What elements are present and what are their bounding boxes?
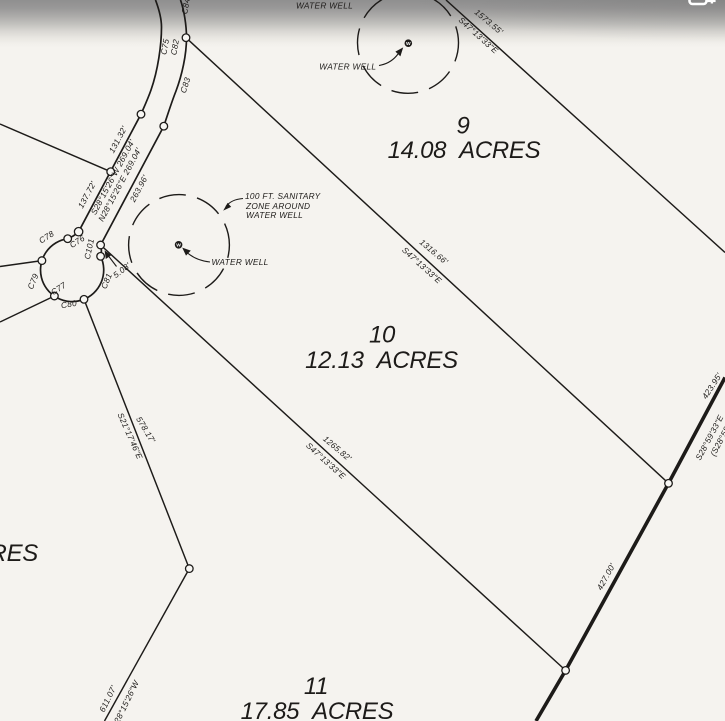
svg-text:11: 11 (304, 673, 328, 700)
svg-text:C80: C80 (60, 298, 78, 311)
svg-text:12.13 ACRES: 12.13 ACRES (305, 347, 458, 374)
svg-text:17.85 ACRES: 17.85 ACRES (241, 698, 394, 721)
svg-text:427.00': 427.00' (594, 561, 617, 591)
svg-text:611.07': 611.07' (97, 684, 119, 714)
svg-text:9: 9 (456, 113, 469, 140)
svg-text:14.08 ACRES: 14.08 ACRES (388, 137, 541, 164)
svg-text:100 FT. SANITARY: 100 FT. SANITARY (245, 191, 322, 201)
svg-text:ACRES: ACRES (0, 540, 38, 567)
svg-text:C79: C79 (25, 272, 40, 291)
svg-text:C84: C84 (179, 0, 192, 15)
svg-text:WATER WELL: WATER WELL (296, 1, 353, 11)
svg-text:10: 10 (369, 322, 396, 349)
svg-text:W: W (176, 243, 181, 249)
svg-text:C78: C78 (37, 228, 56, 245)
svg-text:W: W (406, 41, 411, 47)
svg-text:WATER WELL: WATER WELL (319, 61, 376, 71)
svg-text:WATER WELL: WATER WELL (246, 210, 303, 220)
svg-text:C82: C82 (168, 38, 181, 56)
svg-text:WATER WELL: WATER WELL (211, 257, 268, 267)
